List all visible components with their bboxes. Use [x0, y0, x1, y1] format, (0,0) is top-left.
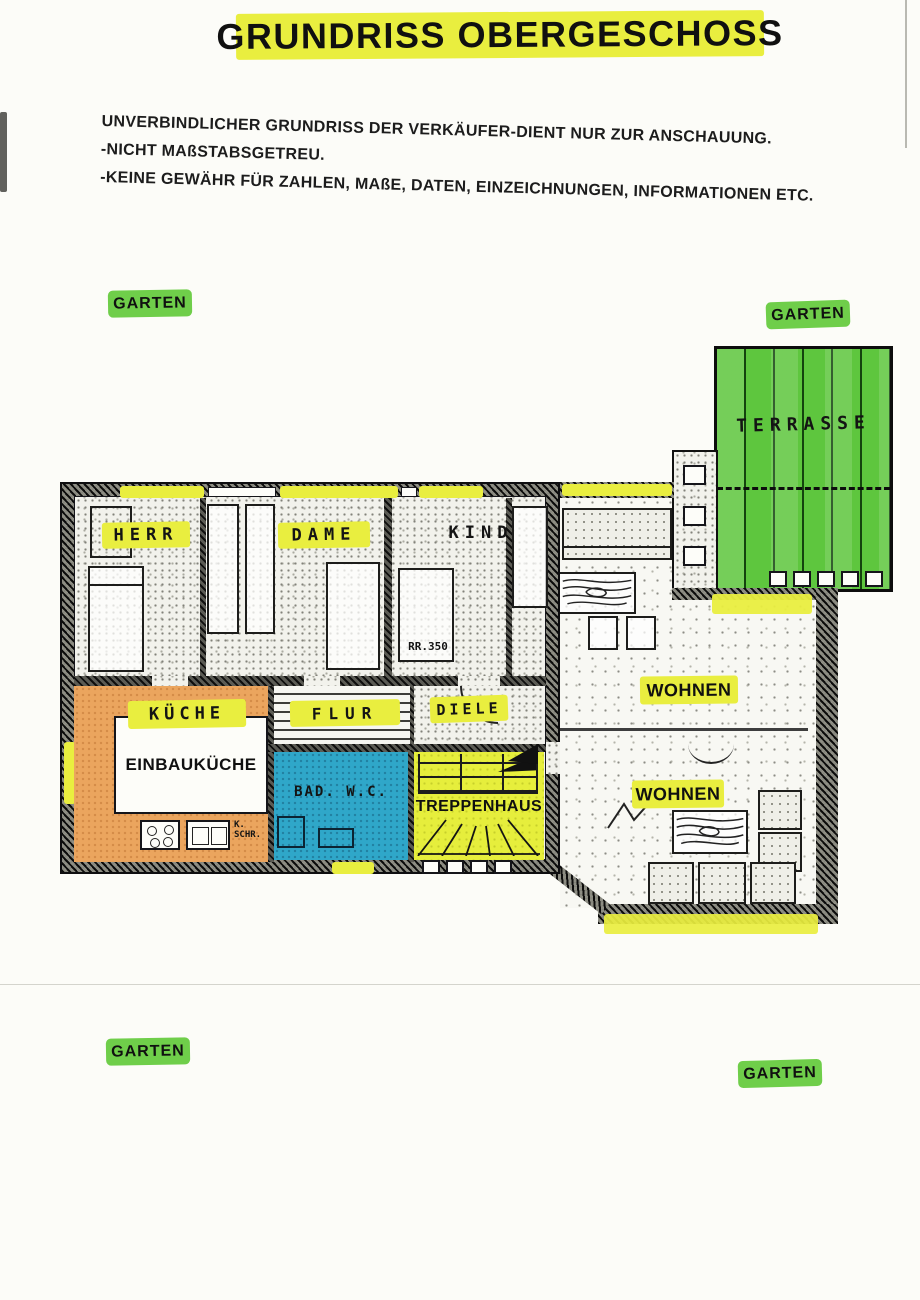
window-top [120, 486, 204, 498]
terrace-railing-post [793, 571, 811, 587]
wood-table-upper [558, 572, 636, 614]
wohnen-upper-label: WOHNEN [646, 679, 731, 701]
window-post [446, 860, 464, 874]
terrace-railing-post [817, 571, 835, 587]
chimney-flue [683, 506, 706, 526]
bed-kind: RR.350 [398, 568, 454, 662]
window-sill [401, 487, 417, 497]
wood-grain-icon [560, 574, 634, 612]
dame-label: DAME [291, 524, 356, 545]
window-under-terrace [712, 594, 812, 614]
floor-level-line [560, 728, 808, 731]
bed-dame [245, 504, 275, 634]
window-top [280, 486, 398, 498]
wohnen-upper-highlight: WOHNEN [640, 675, 738, 704]
window-post [470, 860, 488, 874]
sofa-segment [750, 862, 796, 904]
room-bad-wc: BAD. W.C. [274, 752, 408, 860]
terrace-dashed-line [717, 487, 890, 490]
room-treppenhaus: TREPPENHAUS [414, 752, 544, 860]
wall-right-wohnen [816, 588, 838, 924]
wood-grain-icon [674, 812, 746, 852]
bed-dame [207, 504, 239, 634]
window-bottom [332, 862, 374, 874]
door-gap [458, 676, 500, 686]
kueche-label: KÜCHE [149, 703, 226, 724]
kind-label-box: KIND [440, 520, 522, 546]
terrace-railing-post [841, 571, 859, 587]
chimney-block [672, 450, 718, 592]
terrace-railing-post [865, 571, 883, 587]
flur-label: FLUR [312, 703, 379, 723]
door-gap [152, 676, 188, 686]
bath-fixture [318, 828, 354, 848]
bath-fixture [277, 816, 305, 848]
diele-label: DIELE [436, 699, 502, 719]
wood-table-lower [672, 810, 748, 854]
room-terrasse: TERRASSE [714, 346, 893, 592]
bad-wc-label: BAD. W.C. [294, 784, 388, 800]
kueche-highlight: KÜCHE [128, 699, 246, 729]
wohnen-lower-highlight: WOHNEN [632, 780, 724, 809]
bed-herr [88, 566, 144, 672]
bed-note: RR.350 [408, 640, 448, 653]
fridge-note: K. SCHR. [234, 820, 268, 840]
chimney-flue [683, 546, 706, 566]
flur-highlight: FLUR [290, 699, 400, 727]
window-top-wohnen [562, 484, 672, 496]
armchair [588, 616, 618, 650]
einbaukueche-area: EINBAUKÜCHE [114, 716, 268, 814]
main-block: EINBAUKÜCHE K. SCHR. BAD. W.C. [60, 482, 560, 874]
sofa-segment [758, 790, 802, 830]
door-gap [304, 676, 340, 686]
diele-highlight: DIELE [430, 695, 509, 724]
bed-dame [326, 562, 380, 670]
wall-flur-diele [410, 686, 414, 746]
chimney-flue [683, 465, 706, 485]
window-post [494, 860, 512, 874]
sofa-top [562, 508, 672, 560]
terrace-railing-post [769, 571, 787, 587]
dame-highlight: DAME [278, 521, 370, 549]
floor-plan: TERRASSE [0, 0, 920, 1300]
wall-herr-dame [200, 498, 206, 678]
wohnen-lower-label: WOHNEN [635, 783, 720, 805]
window-sill [208, 487, 276, 497]
door-gap-wohnen [546, 742, 560, 774]
wall-dame-kind [384, 498, 392, 678]
herr-highlight: HERR [102, 521, 190, 549]
herr-label: HERR [113, 524, 178, 545]
einbaukueche-label: EINBAUKÜCHE [125, 755, 256, 775]
treppenhaus-label: TREPPENHAUS [416, 798, 542, 816]
scanned-floorplan-page: GRUNDRISS OBERGESCHOSS UNVERBINDLICHER G… [0, 0, 920, 1300]
kind-label: KIND [449, 523, 514, 543]
cooktop [140, 820, 180, 850]
window-post [422, 860, 440, 874]
sofa-segment [648, 862, 694, 904]
window-bottom-wohnen [604, 914, 818, 934]
stair-fan-icon [416, 818, 542, 856]
window-top [419, 486, 483, 498]
sofa-segment [698, 862, 746, 904]
kitchen-sink [186, 820, 230, 850]
armchair [626, 616, 656, 650]
terrasse-label: TERRASSE [736, 412, 871, 437]
